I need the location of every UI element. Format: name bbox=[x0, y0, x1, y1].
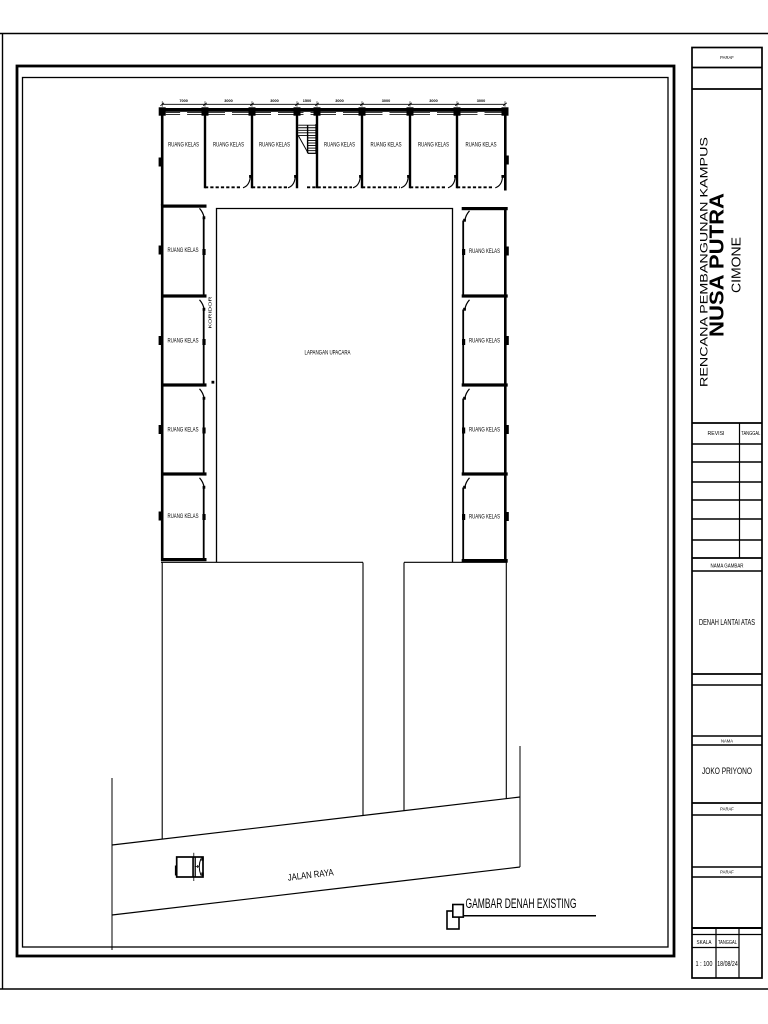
svg-text:LAPANGAN UPACARA: LAPANGAN UPACARA bbox=[305, 351, 351, 357]
svg-text:18/08/24: 18/08/24 bbox=[717, 961, 738, 968]
svg-text:3000: 3000 bbox=[477, 99, 486, 103]
svg-text:3000: 3000 bbox=[335, 99, 344, 103]
svg-text:RUANG KELAS: RUANG KELAS bbox=[259, 142, 290, 148]
svg-text:RUANG KELAS: RUANG KELAS bbox=[469, 514, 500, 520]
svg-text:RUANG KELAS: RUANG KELAS bbox=[168, 142, 199, 148]
svg-text:JALAN RAYA: JALAN RAYA bbox=[287, 867, 335, 883]
svg-text:RUANG KELAS: RUANG KELAS bbox=[168, 338, 199, 344]
svg-text:KORIDOR: KORIDOR bbox=[208, 297, 213, 329]
svg-text:3000: 3000 bbox=[224, 99, 233, 103]
svg-text:7000: 7000 bbox=[179, 99, 188, 103]
svg-text:JOKO PRIYONO: JOKO PRIYONO bbox=[702, 766, 752, 776]
svg-text:TANGGAL: TANGGAL bbox=[718, 940, 737, 946]
svg-text:3000: 3000 bbox=[270, 99, 279, 103]
svg-text:1 : 100: 1 : 100 bbox=[696, 961, 713, 968]
svg-text:PARAF: PARAF bbox=[720, 55, 734, 60]
svg-text:RUANG KELAS: RUANG KELAS bbox=[469, 249, 500, 255]
svg-text:RUANG KELAS: RUANG KELAS bbox=[168, 427, 199, 433]
svg-text:RUANG KELAS: RUANG KELAS bbox=[469, 427, 500, 433]
svg-text:RUANG KELAS: RUANG KELAS bbox=[371, 142, 402, 148]
svg-text:DENAH LANTAI ATAS: DENAH LANTAI ATAS bbox=[699, 617, 755, 627]
svg-text:RUANG KELAS: RUANG KELAS bbox=[168, 248, 199, 254]
svg-text:RUANG KELAS: RUANG KELAS bbox=[168, 514, 199, 520]
svg-text:SKALA: SKALA bbox=[697, 940, 712, 946]
svg-text:3000: 3000 bbox=[382, 99, 391, 103]
svg-text:REVISI: REVISI bbox=[708, 431, 725, 437]
svg-text:NAMA: NAMA bbox=[721, 739, 733, 744]
svg-text:CIMONE: CIMONE bbox=[730, 237, 744, 293]
svg-text:3000: 3000 bbox=[429, 99, 438, 103]
svg-text:RUANG KELAS: RUANG KELAS bbox=[466, 142, 497, 148]
svg-text:TANGGAL: TANGGAL bbox=[741, 431, 760, 437]
svg-text:RUANG KELAS: RUANG KELAS bbox=[324, 142, 355, 148]
svg-text:GAMBAR DENAH EXISTING: GAMBAR DENAH EXISTING bbox=[466, 896, 577, 911]
svg-text:NAMA GAMBAR: NAMA GAMBAR bbox=[711, 564, 744, 570]
svg-text:PARAF: PARAF bbox=[720, 807, 734, 812]
svg-text:NUSA PUTRA: NUSA PUTRA bbox=[707, 193, 729, 337]
svg-text:1500: 1500 bbox=[303, 99, 312, 103]
svg-text:PARAF: PARAF bbox=[720, 870, 734, 875]
svg-text:RUANG KELAS: RUANG KELAS bbox=[418, 142, 449, 148]
svg-text:RUANG KELAS: RUANG KELAS bbox=[213, 142, 244, 148]
svg-text:RUANG KELAS: RUANG KELAS bbox=[469, 338, 500, 344]
